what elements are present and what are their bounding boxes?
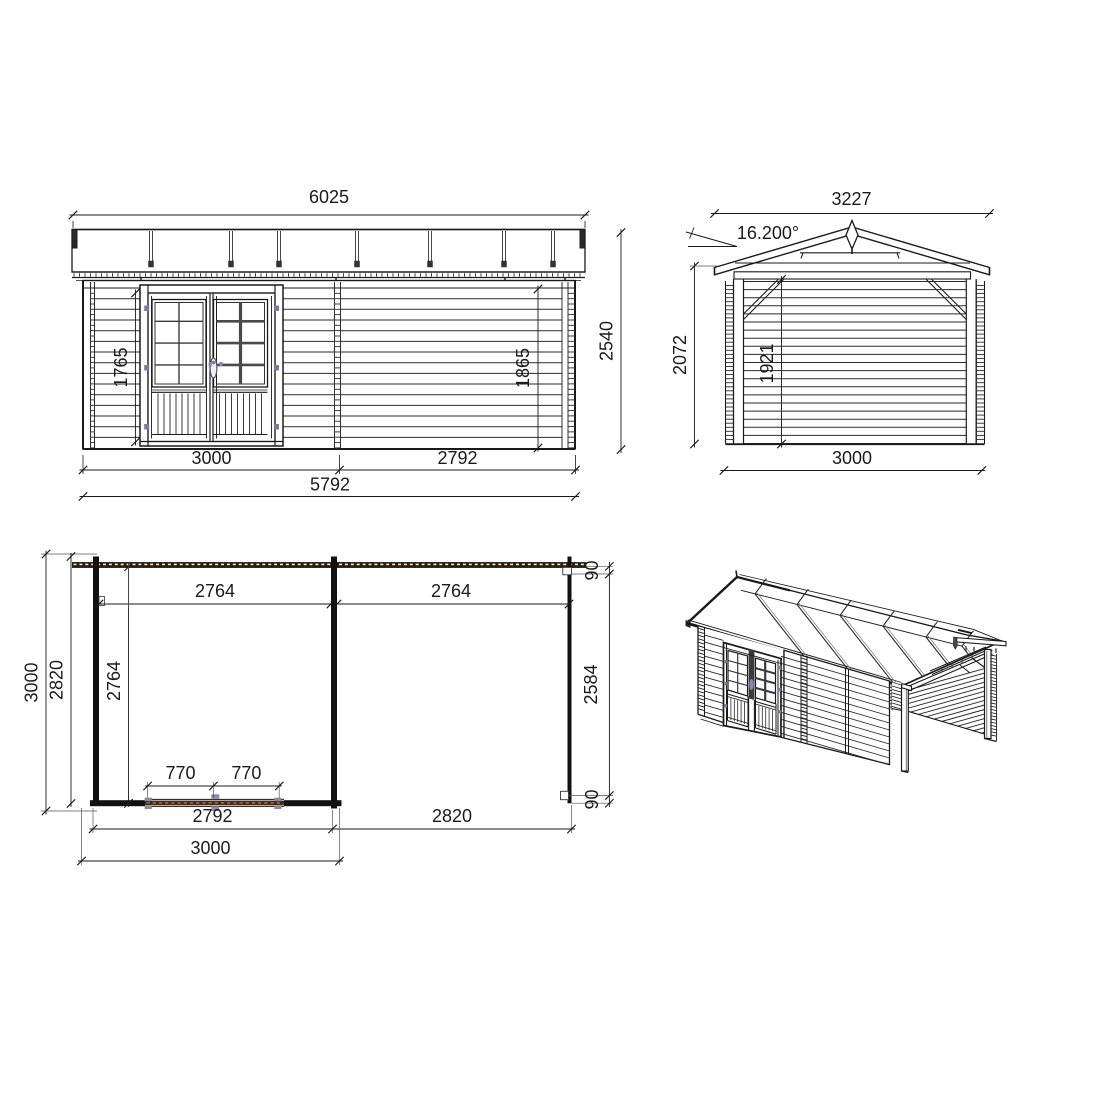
svg-text:2820: 2820 bbox=[432, 806, 472, 826]
svg-text:5792: 5792 bbox=[310, 475, 350, 495]
svg-text:3000: 3000 bbox=[832, 448, 872, 468]
svg-text:2072: 2072 bbox=[670, 335, 690, 375]
svg-text:1865: 1865 bbox=[513, 348, 533, 388]
svg-text:2764: 2764 bbox=[195, 581, 235, 601]
svg-text:3000: 3000 bbox=[191, 448, 231, 468]
svg-text:3000: 3000 bbox=[22, 662, 42, 702]
svg-text:90: 90 bbox=[582, 560, 602, 580]
svg-text:2584: 2584 bbox=[581, 664, 601, 704]
svg-text:1765: 1765 bbox=[111, 347, 131, 387]
svg-text:2792: 2792 bbox=[192, 806, 232, 826]
svg-text:3227: 3227 bbox=[831, 189, 871, 209]
svg-text:3000: 3000 bbox=[190, 838, 230, 858]
svg-text:2764: 2764 bbox=[431, 581, 471, 601]
svg-text:6025: 6025 bbox=[309, 187, 349, 207]
svg-text:2792: 2792 bbox=[437, 448, 477, 468]
svg-text:770: 770 bbox=[231, 763, 261, 783]
svg-text:1921: 1921 bbox=[757, 343, 777, 383]
svg-text:2820: 2820 bbox=[47, 660, 67, 700]
svg-text:2540: 2540 bbox=[597, 321, 617, 361]
svg-text:2764: 2764 bbox=[104, 661, 124, 701]
svg-text:16.200°: 16.200° bbox=[737, 223, 799, 243]
svg-text:770: 770 bbox=[165, 763, 195, 783]
svg-text:90: 90 bbox=[582, 789, 602, 809]
